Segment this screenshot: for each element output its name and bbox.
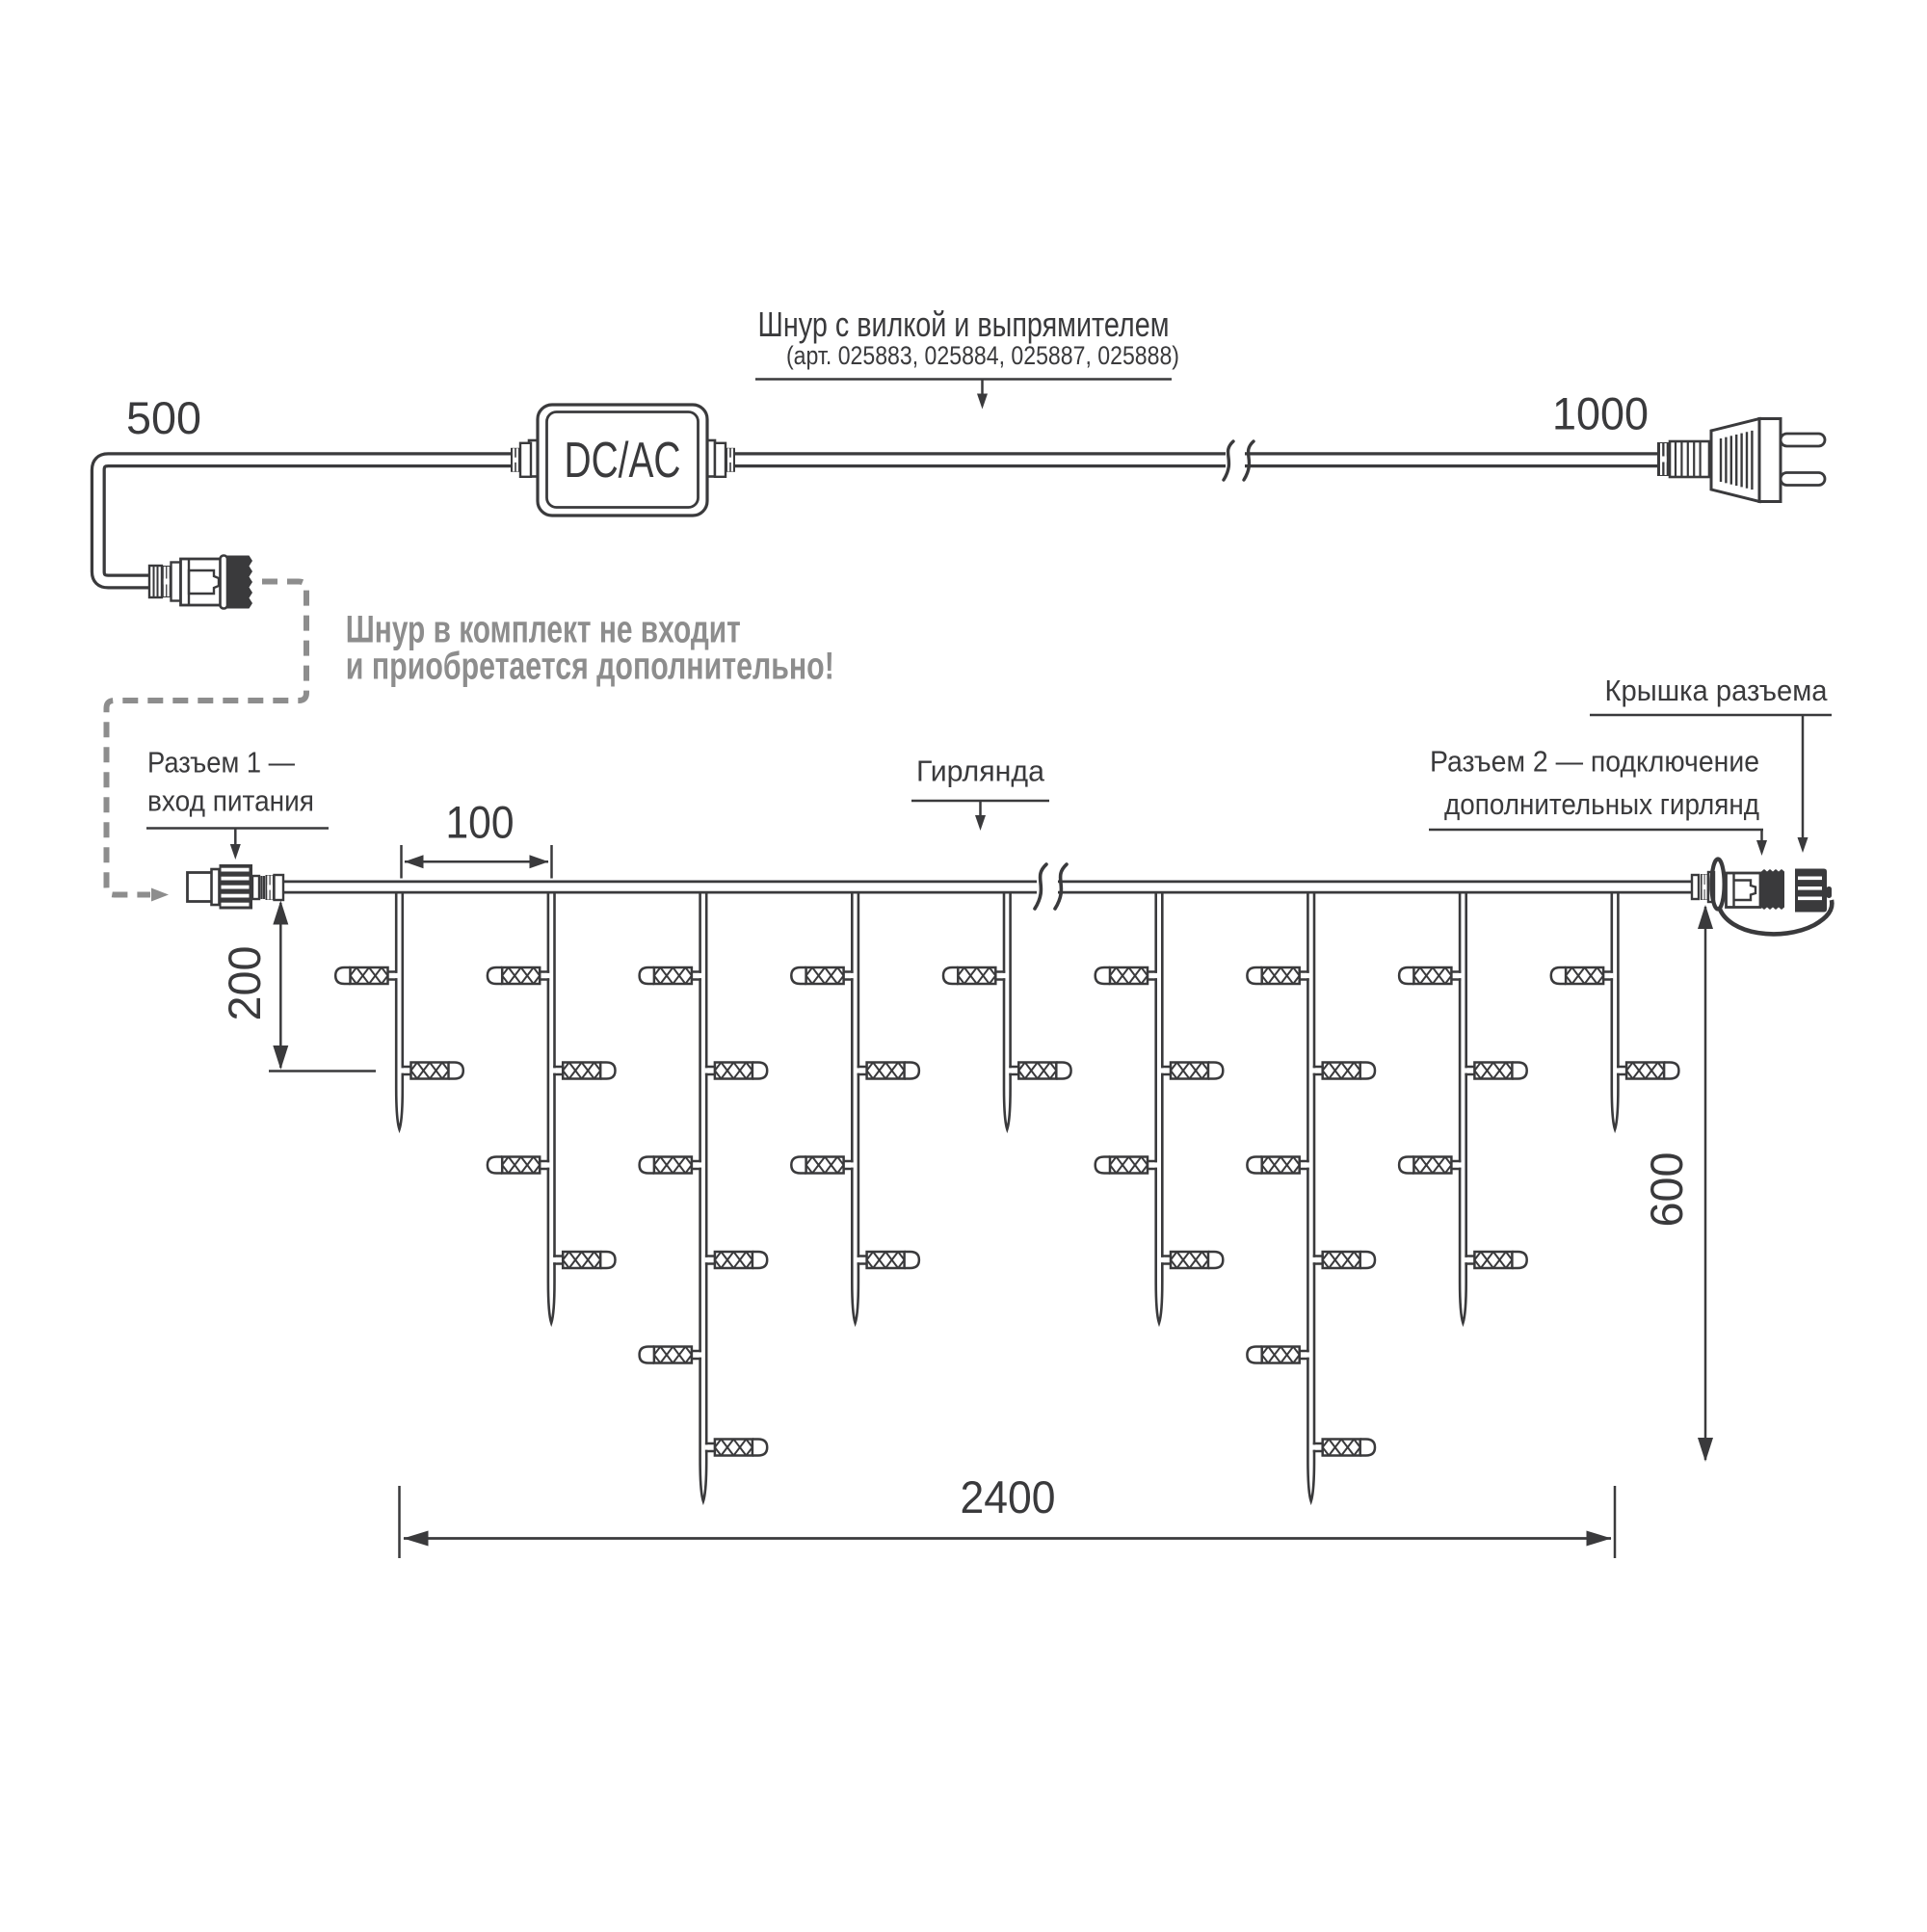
- svg-text:600: 600: [1641, 1152, 1692, 1228]
- svg-text:500: 500: [126, 392, 201, 443]
- svg-text:2400: 2400: [961, 1471, 1056, 1522]
- svg-text:и приобретается дополнительно!: и приобретается дополнительно!: [346, 646, 834, 688]
- svg-text:(арт. 025883, 025884, 025887,: (арт. 025883, 025884, 025887, 025888): [786, 341, 1179, 370]
- svg-text:200: 200: [219, 946, 270, 1021]
- svg-text:100: 100: [446, 797, 515, 848]
- svg-text:дополнительных гирлянд: дополнительных гирлянд: [1444, 787, 1759, 821]
- svg-text:вход питания: вход питания: [147, 784, 314, 818]
- svg-text:Гирлянда: Гирлянда: [916, 754, 1045, 788]
- svg-text:Разъем 1 —: Разъем 1 —: [147, 746, 295, 780]
- svg-text:1000: 1000: [1552, 388, 1649, 439]
- svg-text:DC/AC: DC/AC: [565, 433, 681, 489]
- svg-text:Шнур с вилкой и выпрямителем: Шнур с вилкой и выпрямителем: [758, 304, 1170, 344]
- svg-text:Разъем 2 — подключение: Разъем 2 — подключение: [1430, 745, 1759, 779]
- svg-text:Крышка разъема: Крышка разъема: [1605, 674, 1829, 707]
